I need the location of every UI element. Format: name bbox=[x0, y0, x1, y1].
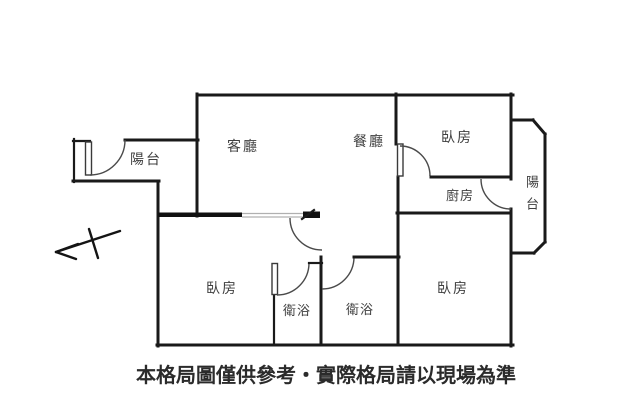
north-arrow-barb bbox=[56, 244, 78, 252]
room-label-balcony-left: 陽台 bbox=[114, 152, 178, 166]
room-label-bedroom-right: 臥房 bbox=[421, 281, 485, 295]
door-arc bbox=[322, 257, 354, 289]
balcony-right-chamfer-top bbox=[533, 120, 545, 134]
door-leaf bbox=[86, 142, 92, 175]
room-label-bathroom-left: 衛浴 bbox=[267, 304, 327, 317]
door-arc bbox=[400, 146, 430, 176]
door-arc bbox=[290, 218, 322, 250]
north-arrow-barb bbox=[56, 252, 76, 259]
floor-plan-drawing bbox=[0, 0, 640, 412]
room-label-kitchen: 廚房 bbox=[430, 189, 490, 202]
room-label-bedroom-left: 臥房 bbox=[190, 281, 254, 295]
room-label-living-room: 客廳 bbox=[211, 139, 275, 153]
door-leaf bbox=[398, 144, 404, 176]
sliding-door bbox=[158, 210, 320, 219]
sliding-door-fixed-panel bbox=[158, 213, 242, 218]
room-label-bathroom-right: 衛浴 bbox=[330, 303, 390, 316]
balcony-right-chamfer-bottom bbox=[534, 242, 545, 253]
north-arrow-cross-mark bbox=[89, 229, 98, 258]
room-label-balcony-right: 陽台 bbox=[512, 167, 538, 227]
disclaimer-text: 本格局圖僅供參考‧實際格局請以現場為準 bbox=[128, 359, 524, 388]
bathroom-walls bbox=[272, 177, 399, 345]
door-leaf bbox=[272, 264, 278, 295]
room-label-bedroom-top: 臥房 bbox=[425, 130, 489, 144]
floor-plan-canvas: 陽台 客廳 餐廳 臥房 廚房 陽台 臥房 衛浴 衛浴 臥房 本格局圖僅供參考‧實… bbox=[0, 0, 640, 412]
door-arc bbox=[277, 263, 309, 295]
room-label-dining-room: 餐廳 bbox=[337, 134, 401, 148]
north-arrow-icon bbox=[56, 229, 120, 259]
